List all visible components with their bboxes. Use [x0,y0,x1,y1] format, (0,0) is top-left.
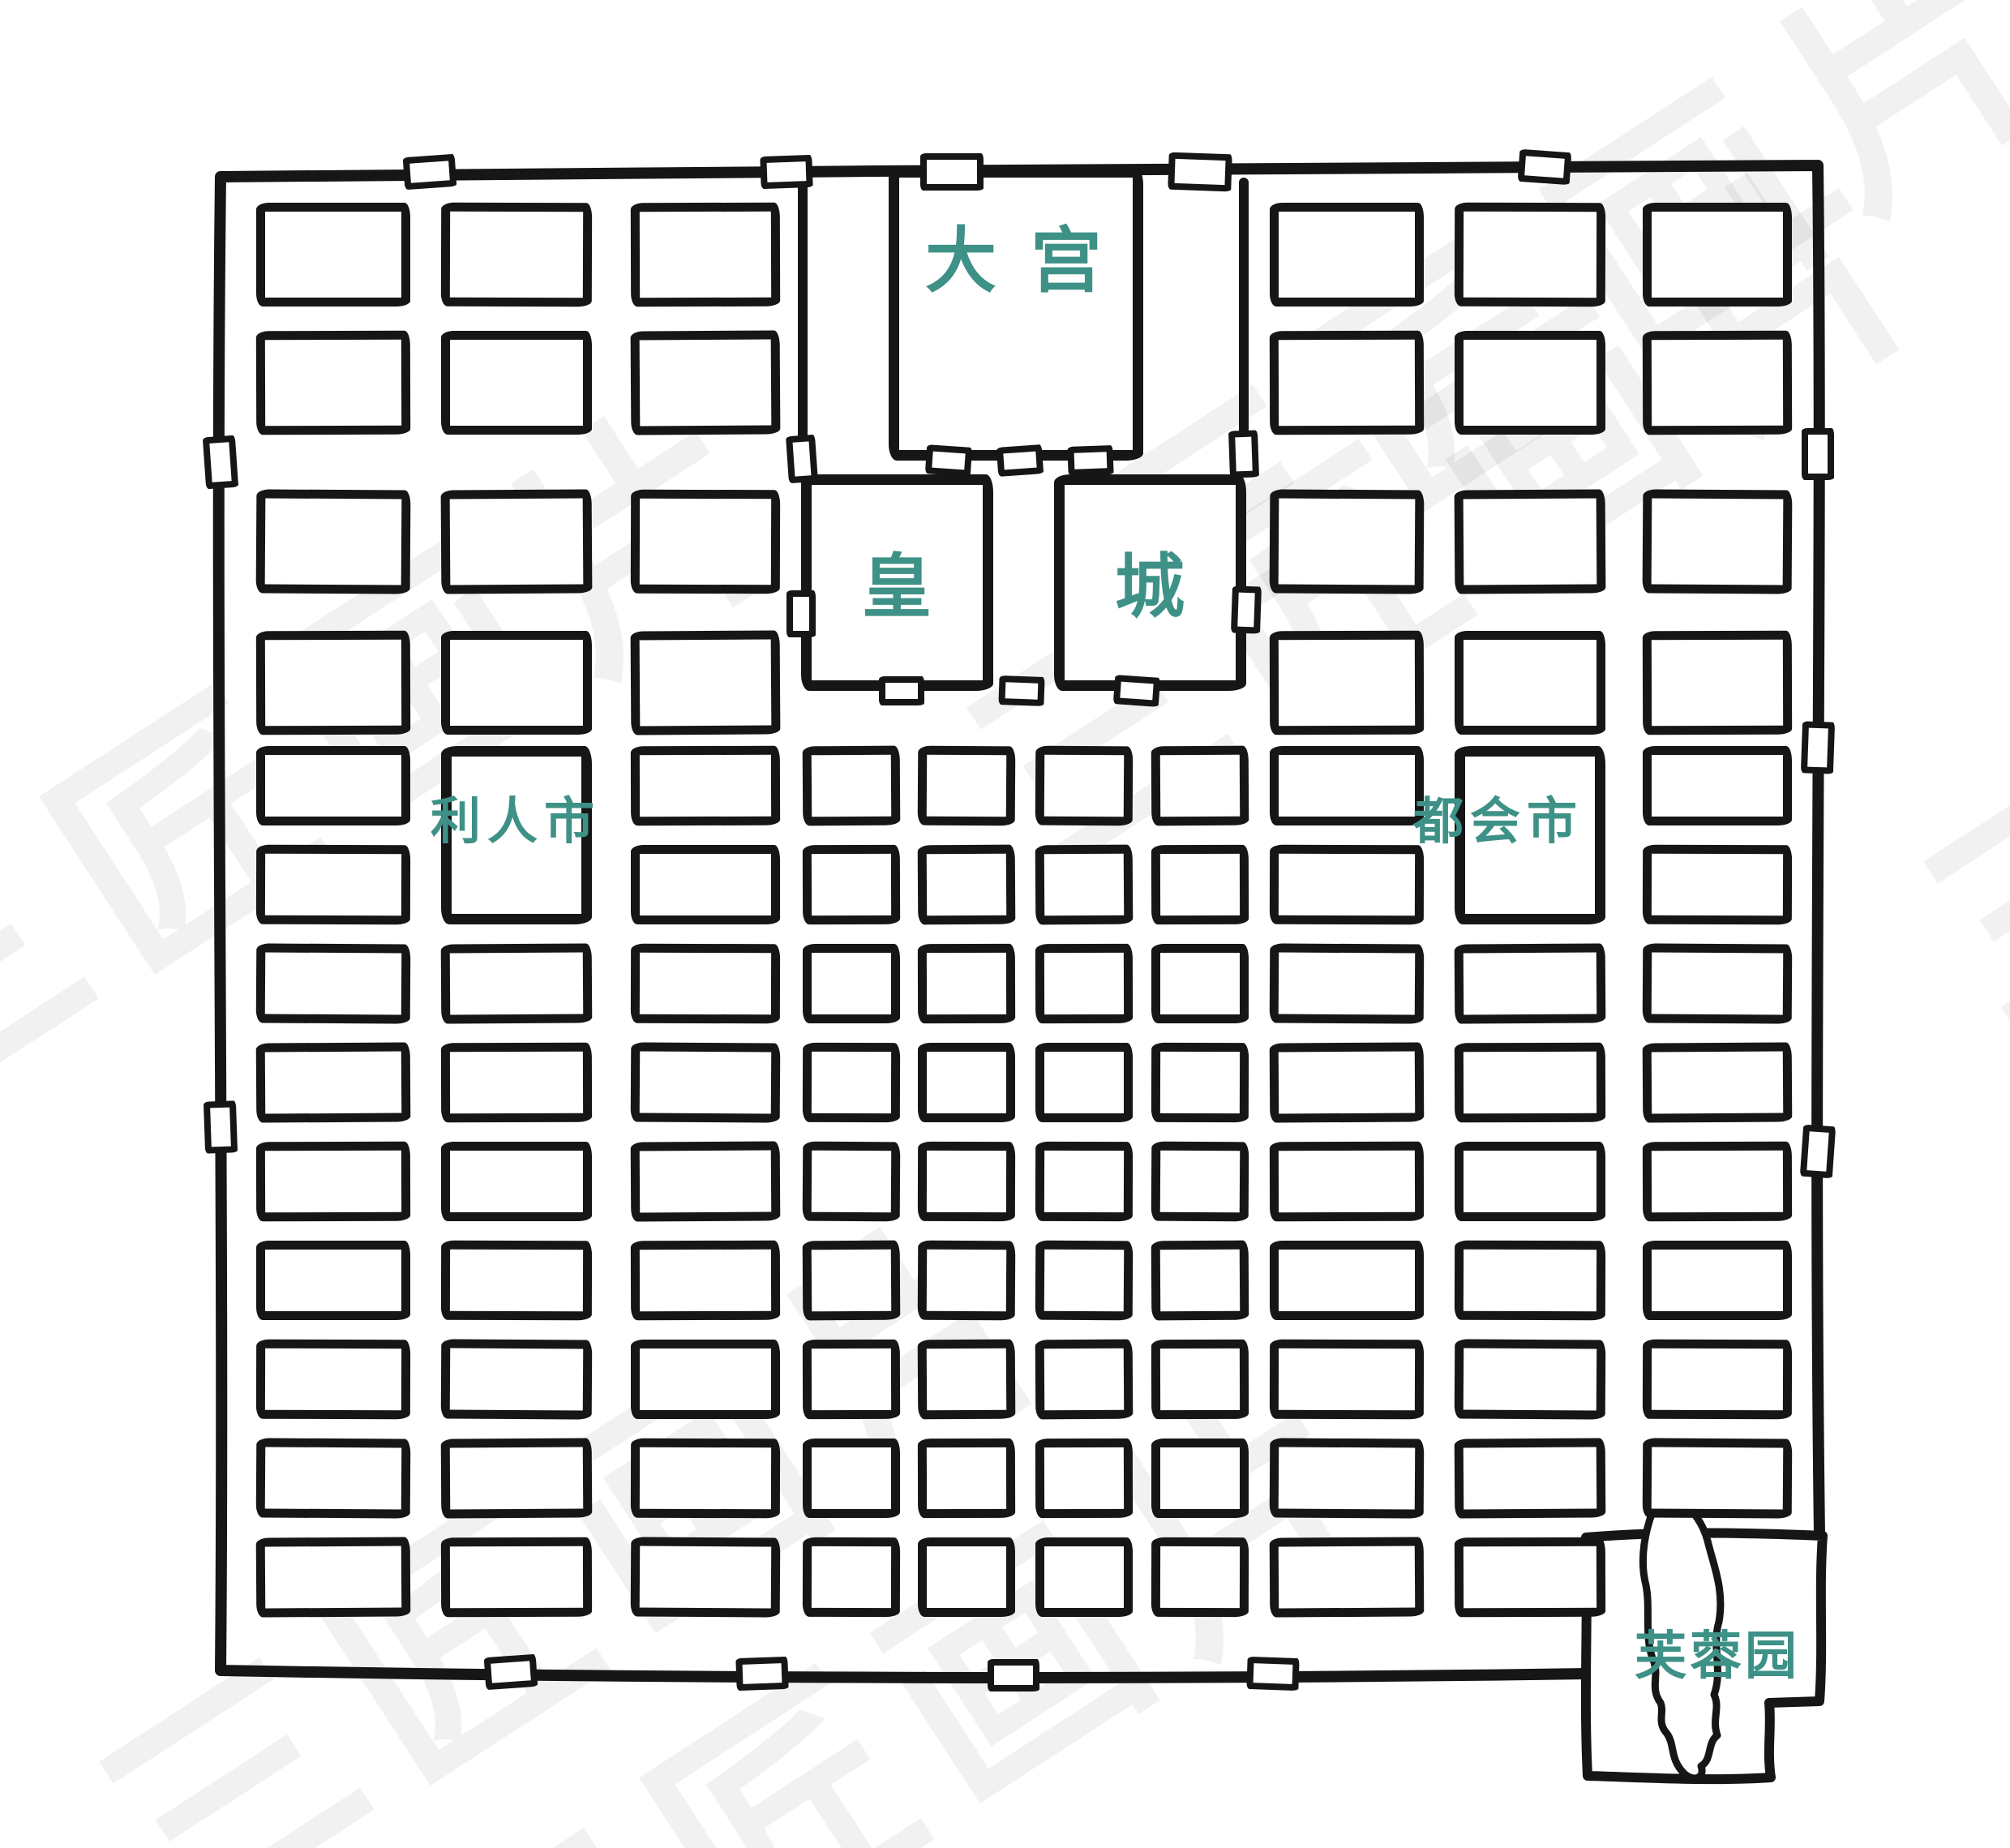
city-block [631,1340,780,1419]
city-block [631,1042,781,1122]
city-block [1455,1537,1605,1618]
city-block [441,1043,592,1123]
city-block [1643,203,1792,307]
city-block [256,1340,410,1420]
gate-icon [988,1659,1039,1691]
city-block [1270,845,1424,925]
city-block [1035,845,1134,925]
city-block [918,1142,1015,1221]
gate-icon [735,1657,788,1691]
city-block [1643,1142,1792,1222]
city-block [918,944,1015,1023]
city-block [1035,1241,1134,1321]
city-block [1035,1043,1133,1122]
gate-icon [203,435,238,490]
city-block [1643,1340,1792,1420]
city-block [256,489,411,594]
city-block [1035,1142,1133,1221]
gate-icon [920,153,984,191]
city-block [1151,944,1249,1023]
city-block [441,1438,593,1518]
city-block [631,746,780,826]
city-block [803,1043,900,1122]
city-block [256,1042,411,1122]
city-block [631,490,780,594]
palace-flank-street-line [798,178,808,474]
city-block [1270,1537,1425,1617]
imperial-west-label: 皇 [862,552,932,622]
city-block [1035,1439,1133,1518]
city-block [1270,631,1424,735]
city-block [256,1537,411,1617]
city-block [1035,944,1133,1023]
city-block [256,746,410,825]
city-block [1455,631,1605,735]
city-block [1455,1241,1605,1321]
city-block [918,1537,1015,1617]
city-block [1270,1241,1424,1320]
gate-icon [1228,430,1259,478]
gate-icon [1802,428,1834,480]
city-block [256,943,411,1023]
city-block [1270,1438,1425,1518]
city-block [631,1141,781,1221]
city-block [1270,489,1425,594]
city-block [918,1043,1015,1122]
gate-icon [879,676,924,705]
city-block [1035,746,1134,826]
city-block [1270,943,1425,1023]
city-block [441,631,592,735]
palace-label: 大宫 [925,225,1136,297]
city-block [1270,746,1424,825]
city-block [803,845,900,924]
city-block [1151,1340,1249,1419]
city-block [441,1537,592,1618]
city-block [631,1241,780,1321]
west-market-label: 利人市 [431,797,601,847]
gate-icon [786,435,818,483]
gate-icon [996,444,1044,477]
city-block [1455,1142,1605,1221]
city-map: 大宫 皇 城 利人市 都会市 芙蓉园 三匠画片三匠画片三匠画片三匠画片三匠画片三… [0,0,2010,1848]
city-block [441,203,592,307]
city-block [1455,943,1606,1023]
city-block [803,1537,900,1617]
city-block [803,944,900,1023]
city-block [256,845,410,925]
city-block [631,944,780,1024]
gate-icon [1168,152,1232,192]
city-block [441,331,592,435]
city-block [1643,331,1792,435]
city-block [441,1339,593,1419]
city-block [1270,331,1424,435]
city-block [1151,845,1249,924]
city-block [1270,203,1424,307]
city-block [1643,631,1792,735]
gate-icon [786,590,816,637]
city-block [256,1241,410,1320]
city-block [631,1537,781,1617]
city-block [1151,1142,1249,1222]
city-block [1643,489,1793,594]
city-block [1270,1042,1425,1122]
gate-icon [1231,585,1262,633]
city-block [803,1340,900,1419]
gate-icon [403,154,457,190]
city-block [1643,845,1792,925]
city-block [1643,1241,1792,1320]
city-block [441,1241,592,1321]
city-block [1643,1042,1793,1122]
city-block [631,845,780,924]
city-block [1455,1043,1605,1123]
city-block [1151,1537,1249,1617]
city-block [918,1340,1016,1420]
city-block [256,1142,410,1222]
city-block [1455,1438,1606,1518]
city-block [256,203,410,307]
city-block [1455,489,1606,594]
city-block [1270,1340,1424,1420]
city-block [1455,1339,1606,1419]
imperial-east-label: 城 [1115,552,1185,622]
gate-icon [1518,149,1572,185]
city-block [918,1241,1016,1321]
city-block [1151,746,1249,826]
city-block [803,1241,901,1321]
city-block [803,1142,901,1222]
gate-icon [484,1654,538,1690]
gate-icon [1113,675,1160,707]
city-block [803,746,901,826]
city-block [1035,1537,1133,1617]
city-block [1035,1340,1134,1420]
gate-icon [925,444,972,477]
city-block [1270,1142,1424,1222]
furong-garden-label: 芙蓉园 [1635,1630,1800,1682]
city-block [256,331,410,435]
city-block [256,1438,411,1518]
gate-icon [1800,1125,1836,1179]
city-block [631,203,780,307]
city-block [631,1439,780,1519]
gate-icon [1246,1657,1299,1691]
city-block [441,943,593,1023]
gate-icon [998,675,1044,706]
city-block [256,631,410,735]
city-block [1151,1043,1249,1122]
palace-block [889,167,1143,461]
gate-icon [760,155,812,189]
city-block [1455,331,1605,435]
city-block [918,746,1016,826]
city-block [803,1439,900,1518]
city-block [1643,943,1793,1023]
city-block [441,1142,592,1221]
city-block [918,845,1016,925]
city-block [1151,1241,1249,1321]
city-block [631,330,781,435]
city-block [918,1439,1015,1518]
city-block [1151,1439,1249,1518]
city-block [441,489,593,594]
city-block [1643,1438,1793,1518]
city-block [631,630,781,735]
city-block [1455,203,1605,307]
city-block [1643,746,1792,825]
gate-icon [1801,721,1835,774]
gate-icon [1067,445,1113,476]
east-market-label: 都会市 [1413,797,1584,847]
gate-icon [204,1100,238,1153]
